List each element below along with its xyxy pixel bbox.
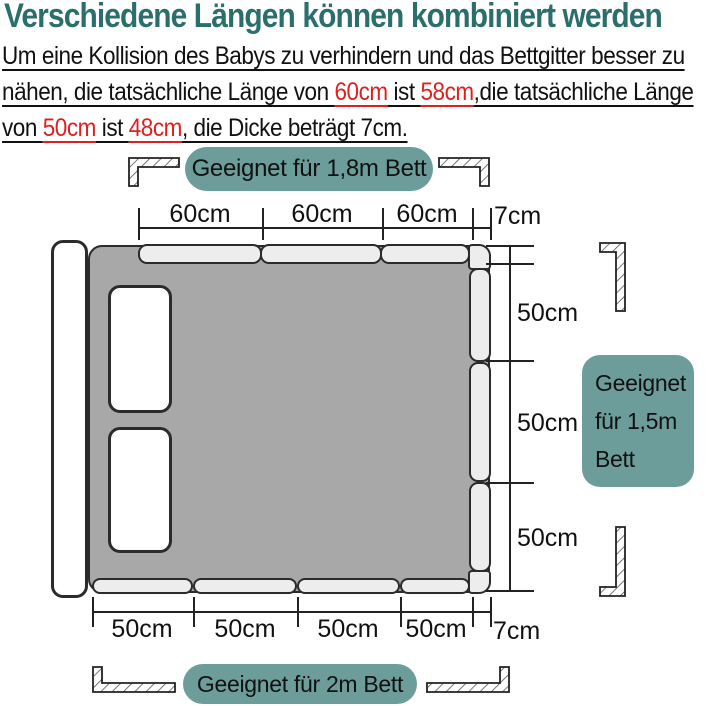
dimension-label: 60cm bbox=[396, 200, 457, 229]
dimension-tick bbox=[193, 597, 195, 627]
rail-cross-section-icon bbox=[438, 157, 490, 187]
rail-segment-bottom-1 bbox=[92, 578, 193, 594]
dimension-tick bbox=[92, 597, 94, 627]
rail-segment-top-2 bbox=[260, 244, 382, 264]
intro-line-3: von 50cm ist 48cm, die Dicke beträgt 7cm… bbox=[2, 110, 686, 146]
dimension-label: 50cm bbox=[517, 409, 578, 438]
rail-segment-right-1 bbox=[469, 268, 491, 362]
dimension-label: 50cm bbox=[214, 615, 275, 644]
dimension-tick bbox=[490, 208, 492, 240]
rail-segment-bottom-3 bbox=[297, 578, 400, 594]
dimension-label: 50cm bbox=[517, 299, 578, 328]
rail-cross-section-icon bbox=[599, 526, 626, 597]
badge-2m-bett: Geeignet für 2m Bett bbox=[183, 664, 417, 704]
headboard bbox=[51, 240, 88, 598]
dimension-label: 50cm bbox=[317, 615, 378, 644]
dimension-tick bbox=[262, 208, 264, 240]
dimension-line bbox=[92, 611, 490, 613]
dimension-tick bbox=[486, 360, 534, 362]
rail-segment-top-3 bbox=[380, 244, 470, 264]
dimension-label: 50cm bbox=[517, 524, 578, 553]
pillow bbox=[108, 285, 172, 413]
dimension-tick bbox=[382, 208, 384, 240]
dimension-tick bbox=[486, 245, 534, 247]
rail-cross-section-icon bbox=[426, 666, 510, 693]
dimension-line bbox=[509, 245, 511, 590]
intro-text: Um eine Kollision des Babys zu verhinder… bbox=[2, 38, 720, 146]
dimension-label: 7cm bbox=[494, 202, 541, 231]
rail-cross-section-icon bbox=[92, 666, 176, 693]
rail-segment-right-3 bbox=[469, 482, 491, 572]
dimension-tick bbox=[472, 208, 474, 240]
dimension-tick bbox=[400, 597, 402, 627]
intro-line-2: nähen, die tatsächliche Länge von 60cm i… bbox=[2, 74, 686, 110]
dimension-tick bbox=[472, 597, 474, 627]
highlight-58cm: 58cm bbox=[420, 78, 473, 106]
pillow bbox=[108, 427, 172, 553]
product-infographic: Verschiedene Längen können kombiniert we… bbox=[0, 0, 720, 706]
dimension-tick bbox=[486, 590, 534, 592]
highlight-60cm: 60cm bbox=[334, 78, 387, 106]
rail-cross-section-icon bbox=[128, 157, 180, 187]
dimension-label: 7cm bbox=[493, 617, 540, 646]
dimension-tick bbox=[486, 482, 534, 484]
rail-segment-right-2 bbox=[469, 362, 491, 482]
rail-segment-bottom-4 bbox=[400, 578, 470, 594]
dimension-label: 50cm bbox=[111, 615, 172, 644]
highlight-50cm: 50cm bbox=[43, 114, 96, 142]
page-title: Verschiedene Längen können kombiniert we… bbox=[4, 0, 662, 36]
rail-segment-bottom-2 bbox=[193, 578, 297, 594]
dimension-tick bbox=[297, 597, 299, 627]
intro-line-1: Um eine Kollision des Babys zu verhinder… bbox=[2, 38, 686, 74]
dimension-tick bbox=[138, 208, 140, 240]
dimension-label: 50cm bbox=[405, 615, 466, 644]
badge-1-5m-bett: Geeignet für 1,5m Bett bbox=[582, 355, 694, 487]
dimension-label: 60cm bbox=[291, 200, 352, 229]
dimension-tick bbox=[490, 597, 492, 627]
rail-cross-section-icon bbox=[599, 242, 626, 312]
badge-1-8m-bett: Geeignet für 1,8m Bett bbox=[185, 147, 433, 191]
rail-segment-top-1 bbox=[138, 244, 262, 264]
rail-corner-top-right bbox=[468, 244, 491, 270]
dimension-tick bbox=[486, 263, 534, 265]
highlight-48cm: 48cm bbox=[129, 114, 182, 142]
dimension-label: 60cm bbox=[169, 200, 230, 229]
